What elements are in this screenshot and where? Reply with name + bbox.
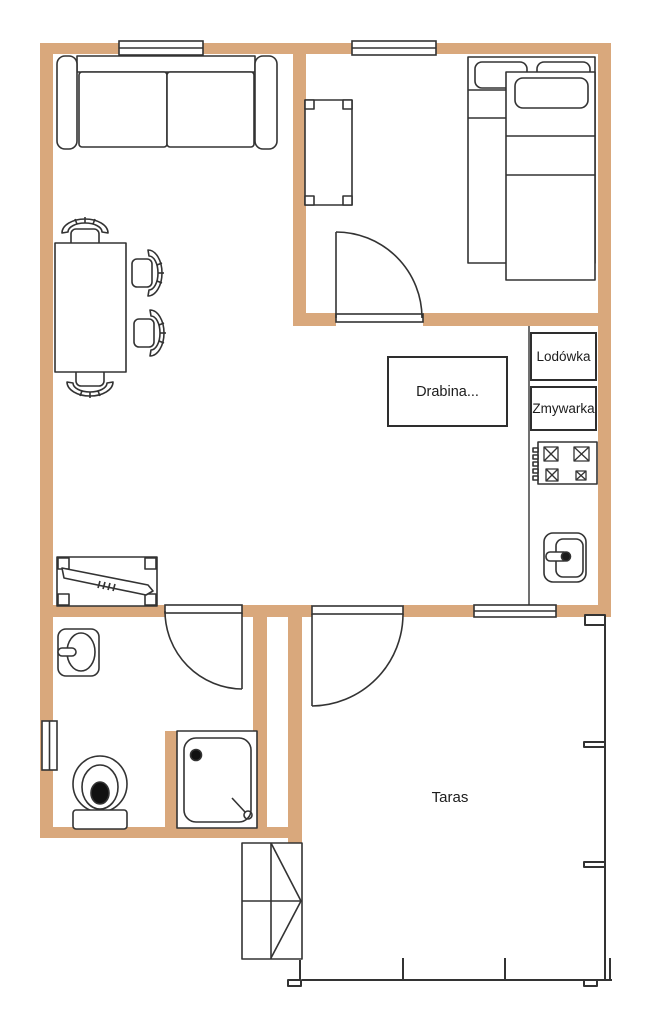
dishwasher-label-box: Zmywarka: [530, 386, 597, 431]
burner-icon: [546, 469, 558, 481]
ladder-label: Drabina...: [416, 384, 479, 400]
stove-icon: [533, 442, 597, 484]
door-openings: [165, 311, 423, 619]
furniture: [55, 56, 612, 986]
window-bathroom-left: [42, 721, 57, 770]
fridge-label: Lodówka: [536, 349, 590, 364]
wall-bedroom-left: [293, 54, 306, 318]
window-top-left: [119, 41, 203, 55]
chair-icon: [132, 250, 164, 296]
burner-icon: [576, 471, 586, 480]
window-living-terrace: [474, 605, 556, 617]
tv-icon: [57, 557, 157, 606]
terrace-label: Taras: [390, 787, 510, 807]
wall-shower-partition: [165, 731, 177, 827]
kitchen-sink-icon: [544, 533, 586, 582]
bed-front-icon: [506, 72, 595, 280]
wall-right: [598, 43, 611, 617]
burner-icon: [574, 447, 589, 461]
ladder-label-box: Drabina...: [387, 356, 508, 427]
wall-left: [40, 43, 53, 838]
toilet-icon: [73, 756, 127, 829]
sofa-icon: [57, 56, 277, 149]
window-top-right: [352, 41, 436, 55]
floor-plan: Lodówka Zmywarka Drabina... Taras: [0, 0, 652, 1024]
burner-icon: [544, 447, 558, 461]
wall-stud-b: [288, 617, 302, 843]
door-terrace: [312, 606, 403, 706]
fridge-label-box: Lodówka: [530, 332, 597, 381]
chair-icon: [134, 310, 166, 356]
dishwasher-label: Zmywarka: [532, 401, 594, 416]
dining-table-icon: [55, 243, 126, 372]
bedside-table-icon: [305, 100, 352, 205]
shower-icon: [177, 731, 257, 828]
floor-plan-drawing: [0, 0, 652, 1024]
bathroom-sink-icon: [58, 629, 99, 676]
stairs-icon: [242, 843, 302, 959]
door-bedroom: [336, 232, 423, 322]
